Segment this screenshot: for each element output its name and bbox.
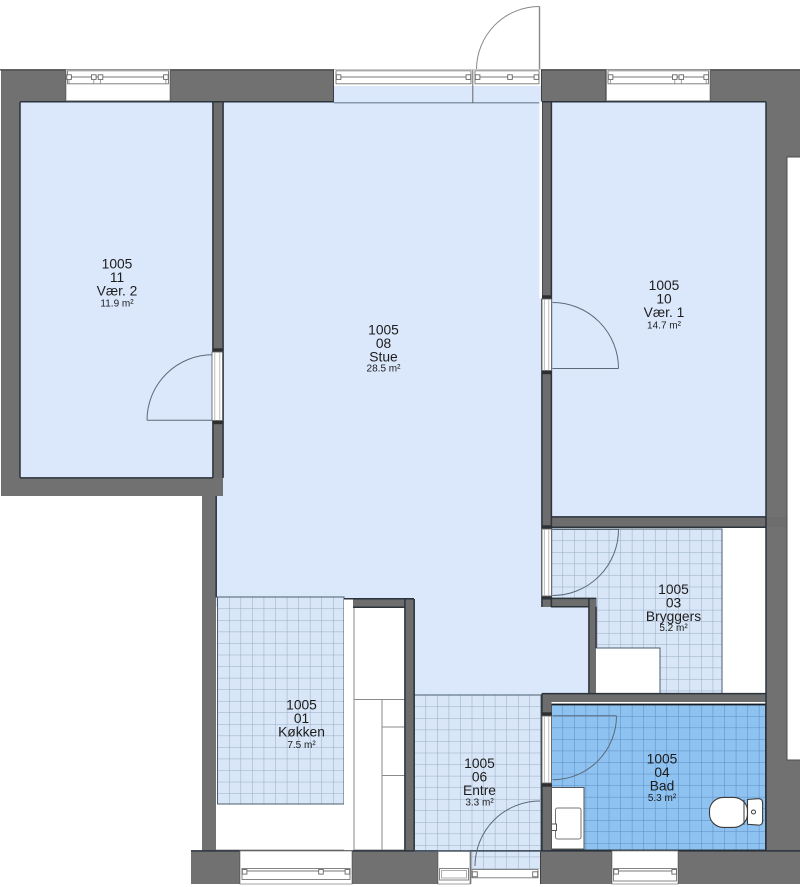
svg-text:7.5 m²: 7.5 m² [287, 740, 316, 751]
svg-text:Køkken: Køkken [278, 725, 325, 740]
svg-text:Entre: Entre [463, 783, 496, 798]
svg-text:3.3 m²: 3.3 m² [465, 798, 494, 809]
svg-text:14.7 m²: 14.7 m² [647, 321, 682, 332]
svg-text:Vær. 2: Vær. 2 [97, 284, 138, 299]
svg-text:5.3 m²: 5.3 m² [648, 793, 677, 804]
svg-text:28.5 m²: 28.5 m² [367, 364, 402, 375]
svg-text:Bad: Bad [650, 779, 675, 794]
svg-text:Stue: Stue [369, 350, 398, 365]
svg-text:5.2 m²: 5.2 m² [659, 623, 688, 634]
svg-text:Bryggers: Bryggers [646, 609, 701, 624]
svg-text:11.9 m²: 11.9 m² [100, 299, 134, 310]
svg-text:Vær. 1: Vær. 1 [644, 305, 685, 320]
